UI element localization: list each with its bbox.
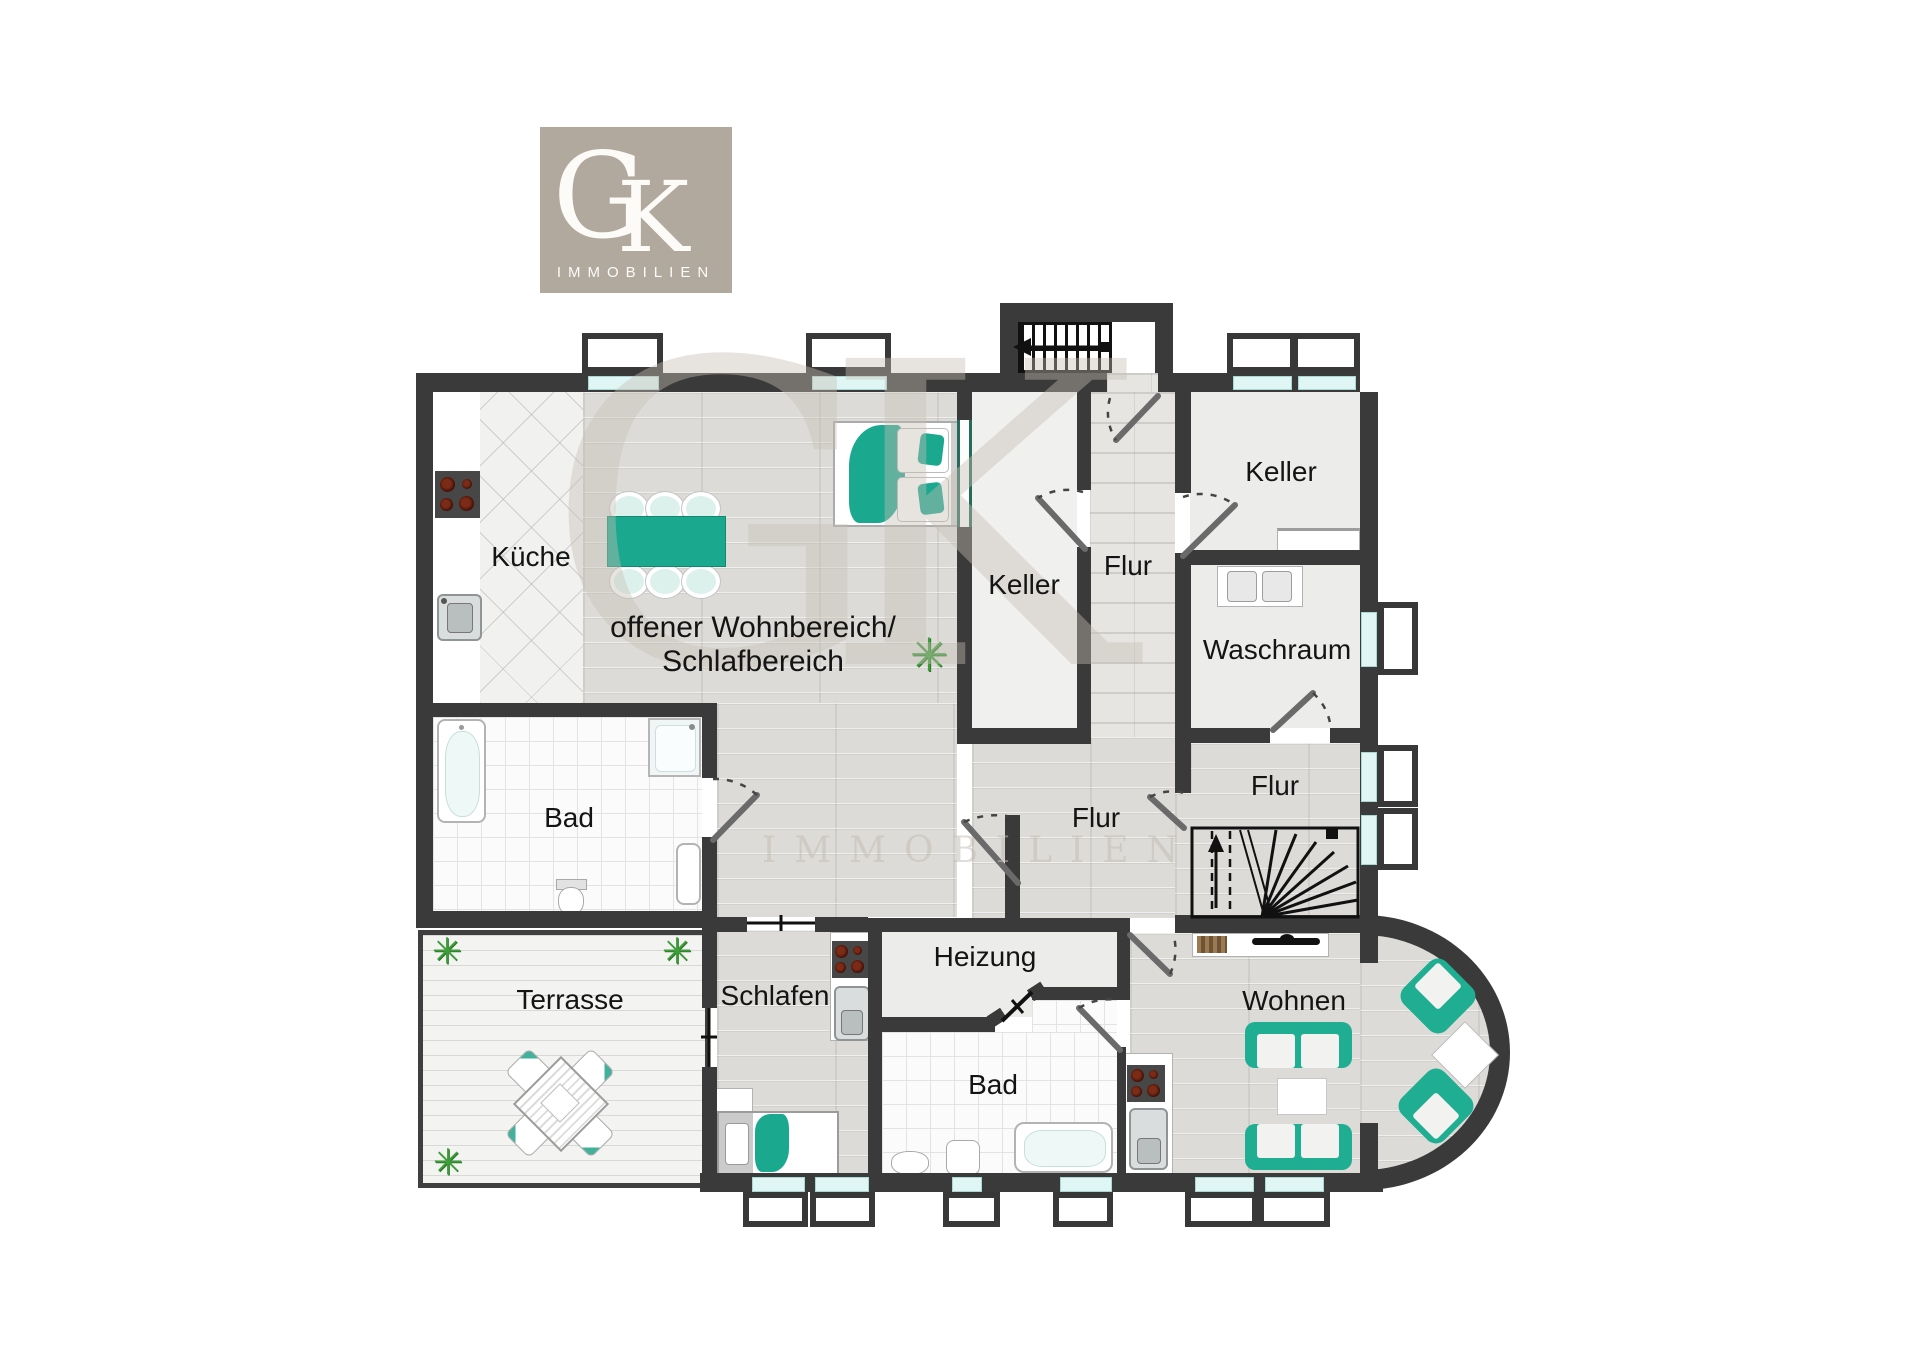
room-label-schlafen: Schlafen [721, 980, 830, 1012]
floor-plan-page: GK IMMOBILIEN [0, 0, 1920, 1357]
room-label-terrasse: Terrasse [516, 984, 623, 1016]
room-label-flur-mitte: Flur [1072, 802, 1120, 834]
room-label-wohnbereich: offener Wohnbereich/ Schlafbereich [610, 611, 896, 679]
room-label-keller-links: Keller [988, 569, 1060, 601]
room-label-keller-rechts: Keller [1245, 456, 1317, 488]
interior-staircase [1192, 828, 1358, 917]
doors-and-stairs-overlay [0, 0, 1920, 1357]
exterior-stair-arrow [1013, 338, 1110, 356]
room-label-heizung: Heizung [934, 941, 1037, 973]
room-label-wohnen: Wohnen [1242, 985, 1346, 1017]
room-label-flur-rechts: Flur [1251, 770, 1299, 802]
room-label-flur-oben: Flur [1104, 550, 1152, 582]
room-label-wohnbereich-line1: offener Wohnbereich/ [610, 611, 896, 645]
room-label-bad-unten: Bad [968, 1069, 1018, 1101]
room-label-wohnbereich-line2: Schlafbereich [610, 645, 896, 679]
room-label-bad-oben: Bad [544, 802, 594, 834]
room-label-waschraum: Waschraum [1203, 634, 1351, 666]
room-label-kueche: Küche [491, 541, 570, 573]
